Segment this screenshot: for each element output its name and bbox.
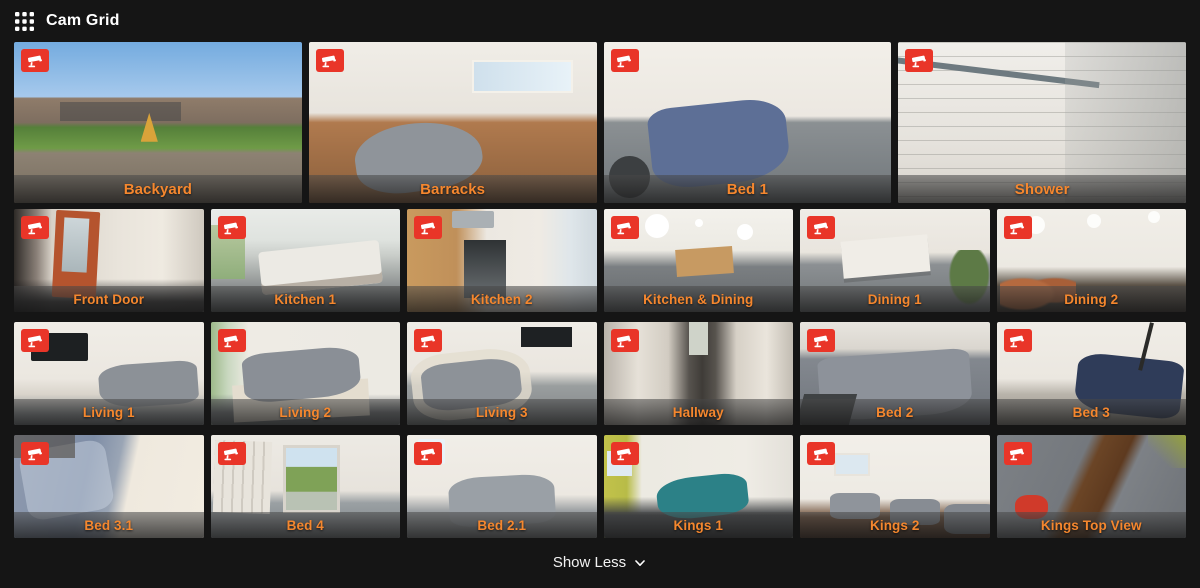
camera-tile-kings-1[interactable]: Kings 1 xyxy=(604,435,794,538)
camera-label: Front Door xyxy=(73,292,144,307)
cctv-camera-icon xyxy=(218,329,246,352)
camera-grid-row-4: Bed 3.1 Bed 4 Bed 2.1 Kings 1 Kings 2 Ki… xyxy=(14,435,1186,538)
camera-label-bar: Bed 3.1 xyxy=(14,512,204,538)
cctv-camera-icon xyxy=(807,442,835,465)
camera-label: Kitchen 1 xyxy=(274,292,336,307)
cctv-camera-icon xyxy=(414,216,442,239)
camera-tile-kings-2[interactable]: Kings 2 xyxy=(800,435,990,538)
show-less-button[interactable]: Show Less xyxy=(553,554,647,571)
camera-label-bar: Shower xyxy=(898,175,1186,203)
camera-label: Bed 3.1 xyxy=(84,518,133,533)
camera-grid: Backyard Barracks Bed 1 Shower Front Doo… xyxy=(0,42,1200,538)
camera-label-bar: Bed 2 xyxy=(800,399,990,425)
camera-tile-bed-4[interactable]: Bed 4 xyxy=(211,435,401,538)
camera-label-bar: Kitchen 1 xyxy=(211,286,401,312)
camera-label-bar: Bed 4 xyxy=(211,512,401,538)
cctv-camera-icon xyxy=(21,329,49,352)
cctv-camera-icon xyxy=(1004,216,1032,239)
camera-label: Backyard xyxy=(124,181,192,198)
camera-label: Living 3 xyxy=(476,405,528,420)
camera-label-bar: Hallway xyxy=(604,399,794,425)
camera-tile-bed-3-1[interactable]: Bed 3.1 xyxy=(14,435,204,538)
grid-icon[interactable] xyxy=(15,12,34,31)
camera-label: Bed 1 xyxy=(727,181,768,198)
camera-label-bar: Living 2 xyxy=(211,399,401,425)
camera-tile-kings-top-view[interactable]: Kings Top View xyxy=(997,435,1187,538)
camera-label-bar: Bed 1 xyxy=(604,175,892,203)
cctv-camera-icon xyxy=(611,49,639,72)
camera-label: Kitchen & Dining xyxy=(643,292,753,307)
camera-label: Dining 2 xyxy=(1064,292,1118,307)
cctv-camera-icon xyxy=(414,329,442,352)
camera-label: Dining 1 xyxy=(868,292,922,307)
camera-tile-barracks[interactable]: Barracks xyxy=(309,42,597,203)
camera-tile-kitchen-2[interactable]: Kitchen 2 xyxy=(407,209,597,312)
camera-label: Bed 2 xyxy=(876,405,913,420)
cctv-camera-icon xyxy=(218,216,246,239)
camera-label: Kings Top View xyxy=(1041,518,1142,533)
camera-tile-backyard[interactable]: Backyard xyxy=(14,42,302,203)
camera-label: Hallway xyxy=(673,405,724,420)
cctv-camera-icon xyxy=(1004,442,1032,465)
footer-bar: Show Less xyxy=(0,554,1200,571)
camera-tile-bed-3[interactable]: Bed 3 xyxy=(997,322,1187,425)
camera-label: Bed 4 xyxy=(287,518,324,533)
camera-label-bar: Barracks xyxy=(309,175,597,203)
cctv-camera-icon xyxy=(414,442,442,465)
camera-label-bar: Bed 3 xyxy=(997,399,1187,425)
camera-tile-front-door[interactable]: Front Door xyxy=(14,209,204,312)
cctv-camera-icon xyxy=(21,442,49,465)
cctv-camera-icon xyxy=(1004,329,1032,352)
camera-label-bar: Kitchen 2 xyxy=(407,286,597,312)
camera-label-bar: Kings 2 xyxy=(800,512,990,538)
show-less-label: Show Less xyxy=(553,554,626,571)
cctv-camera-icon xyxy=(21,49,49,72)
camera-label-bar: Backyard xyxy=(14,175,302,203)
camera-label-bar: Kings 1 xyxy=(604,512,794,538)
cctv-camera-icon xyxy=(218,442,246,465)
camera-label: Barracks xyxy=(420,181,485,198)
camera-grid-row-1: Backyard Barracks Bed 1 Shower xyxy=(14,42,1186,203)
camera-tile-living-2[interactable]: Living 2 xyxy=(211,322,401,425)
cctv-camera-icon xyxy=(611,442,639,465)
header-bar: Cam Grid xyxy=(0,0,1200,42)
camera-label-bar: Living 3 xyxy=(407,399,597,425)
camera-tile-dining-1[interactable]: Dining 1 xyxy=(800,209,990,312)
camera-label: Living 1 xyxy=(83,405,135,420)
cctv-camera-icon xyxy=(21,216,49,239)
camera-label-bar: Kitchen & Dining xyxy=(604,286,794,312)
cctv-camera-icon xyxy=(611,329,639,352)
camera-tile-bed-2-1[interactable]: Bed 2.1 xyxy=(407,435,597,538)
camera-tile-shower[interactable]: Shower xyxy=(898,42,1186,203)
camera-label-bar: Front Door xyxy=(14,286,204,312)
cctv-camera-icon xyxy=(905,49,933,72)
cctv-camera-icon xyxy=(807,216,835,239)
camera-label: Shower xyxy=(1015,181,1070,198)
camera-tile-dining-2[interactable]: Dining 2 xyxy=(997,209,1187,312)
camera-tile-bed-1[interactable]: Bed 1 xyxy=(604,42,892,203)
camera-label-bar: Kings Top View xyxy=(997,512,1187,538)
camera-grid-row-2: Front Door Kitchen 1 Kitchen 2 Kitchen &… xyxy=(14,209,1186,312)
camera-label: Bed 2.1 xyxy=(477,518,526,533)
camera-label: Bed 3 xyxy=(1073,405,1110,420)
camera-tile-bed-2[interactable]: Bed 2 xyxy=(800,322,990,425)
camera-label-bar: Bed 2.1 xyxy=(407,512,597,538)
camera-label-bar: Dining 1 xyxy=(800,286,990,312)
camera-label: Kings 1 xyxy=(674,518,723,533)
page-title: Cam Grid xyxy=(46,12,120,30)
chevron-down-icon xyxy=(633,556,647,570)
cctv-camera-icon xyxy=(807,329,835,352)
camera-label: Kitchen 2 xyxy=(471,292,533,307)
cctv-camera-icon xyxy=(611,216,639,239)
cctv-camera-icon xyxy=(316,49,344,72)
camera-tile-hallway[interactable]: Hallway xyxy=(604,322,794,425)
camera-label-bar: Dining 2 xyxy=(997,286,1187,312)
camera-tile-kitchen-1[interactable]: Kitchen 1 xyxy=(211,209,401,312)
camera-label: Kings 2 xyxy=(870,518,919,533)
camera-tile-living-1[interactable]: Living 1 xyxy=(14,322,204,425)
camera-grid-row-3: Living 1 Living 2 Living 3 Hallway Bed 2… xyxy=(14,322,1186,425)
camera-tile-living-3[interactable]: Living 3 xyxy=(407,322,597,425)
camera-label-bar: Living 1 xyxy=(14,399,204,425)
camera-label: Living 2 xyxy=(279,405,331,420)
camera-tile-kitchen-dining[interactable]: Kitchen & Dining xyxy=(604,209,794,312)
